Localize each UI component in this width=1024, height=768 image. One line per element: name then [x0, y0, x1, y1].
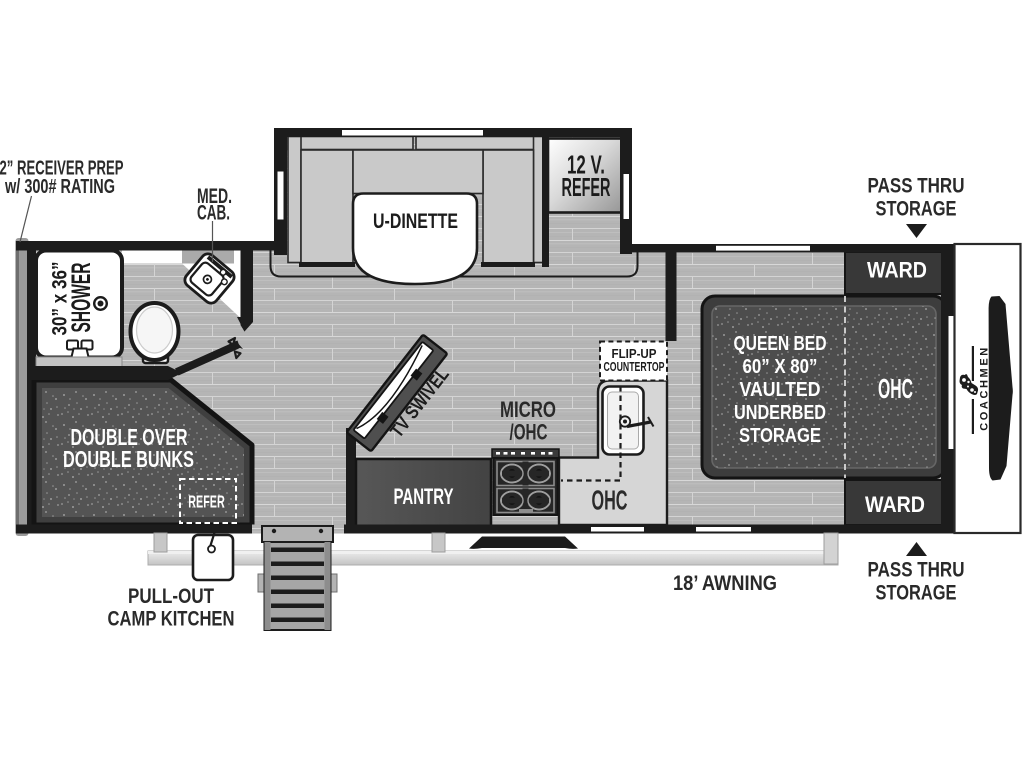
- svg-text:UNDERBED: UNDERBED: [734, 402, 826, 424]
- svg-text:REFER: REFER: [188, 492, 225, 512]
- svg-text:WARD: WARD: [865, 492, 925, 517]
- svg-text:60” X 80”: 60” X 80”: [743, 356, 818, 378]
- svg-text:w/ 300# RATING: w/ 300# RATING: [4, 176, 115, 198]
- svg-text:FLIP-UP: FLIP-UP: [612, 347, 657, 361]
- svg-text:U-DINETTE: U-DINETTE: [373, 210, 458, 233]
- svg-text:DOUBLE BUNKS: DOUBLE BUNKS: [63, 446, 194, 472]
- svg-text:MICRO: MICRO: [500, 397, 556, 422]
- svg-text:PANTRY: PANTRY: [394, 484, 454, 509]
- svg-text:WARD: WARD: [867, 258, 927, 283]
- svg-text:COACHMEN: COACHMEN: [979, 345, 991, 431]
- svg-text:PASS THRU: PASS THRU: [868, 175, 965, 198]
- svg-text:STORAGE: STORAGE: [876, 198, 957, 221]
- svg-text:OHC: OHC: [592, 485, 628, 516]
- svg-text:PASS THRU: PASS THRU: [868, 559, 965, 582]
- svg-text:STORAGE: STORAGE: [876, 582, 957, 605]
- svg-text:QUEEN BED: QUEEN BED: [734, 333, 827, 355]
- svg-text:OHC: OHC: [878, 373, 913, 404]
- svg-text:VAULTED: VAULTED: [740, 379, 821, 401]
- svg-text:CAMP KITCHEN: CAMP KITCHEN: [108, 608, 235, 631]
- svg-text:CAB.: CAB.: [197, 201, 230, 225]
- svg-text:SHOWER: SHOWER: [66, 263, 96, 333]
- svg-text:COUNTERTOP: COUNTERTOP: [604, 360, 665, 374]
- svg-text:PULL-OUT: PULL-OUT: [128, 585, 214, 608]
- svg-text:REFER: REFER: [562, 172, 611, 202]
- svg-text:/OHC: /OHC: [510, 420, 548, 445]
- svg-text:18’ AWNING: 18’ AWNING: [673, 572, 777, 595]
- svg-text:STORAGE: STORAGE: [739, 425, 821, 447]
